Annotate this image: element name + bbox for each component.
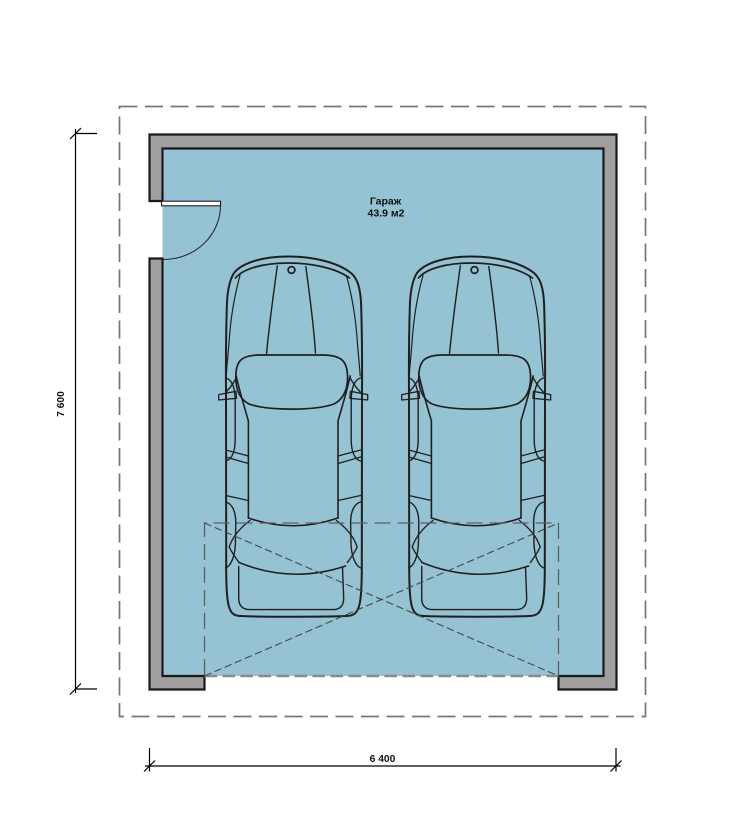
svg-text:6 400: 6 400 [370, 754, 396, 765]
svg-text:Гараж: Гараж [370, 196, 402, 208]
svg-text:7 600: 7 600 [56, 391, 67, 417]
svg-text:43.9 м2: 43.9 м2 [368, 208, 405, 220]
